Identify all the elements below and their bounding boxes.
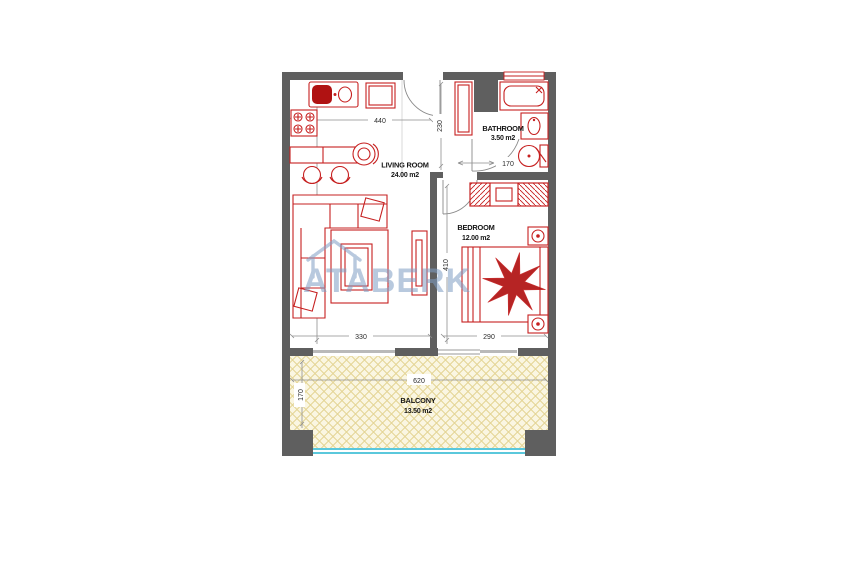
dim-hall-depth: 230 [437, 120, 444, 132]
watermark-text: ATABERK [303, 262, 471, 300]
bedroom-area: 12.00 m2 [462, 235, 490, 242]
living-room-label: LIVING ROOM [381, 161, 429, 170]
toilet [519, 145, 549, 167]
wall-right [548, 72, 556, 432]
bathroom-window [504, 72, 544, 80]
wall-left [282, 72, 290, 432]
dim-balcony-depth: 170 [298, 389, 305, 401]
washbasin [521, 113, 548, 139]
dining-chair-1 [302, 167, 322, 184]
wall-bottom-seg3 [518, 348, 556, 356]
bathtub [500, 82, 548, 110]
dim-bath-door: 170 [502, 161, 514, 168]
dim-bedroom-width: 290 [483, 334, 495, 341]
bathroom-area: 3.50 m2 [491, 135, 516, 142]
wall-bottom-seg1 [282, 348, 313, 356]
living-window-sill [313, 350, 395, 353]
wardrobe [470, 183, 548, 206]
hall-shaft [455, 82, 472, 135]
kitchen-sink-unit [309, 82, 358, 107]
wall-top-mid [443, 72, 504, 80]
balcony-area-label: 13.50 m2 [404, 408, 432, 415]
wall-hall-stub [430, 172, 443, 178]
fridge [366, 83, 395, 108]
dining-table [290, 147, 357, 163]
living-room-area: 24.00 m2 [391, 172, 419, 179]
balcony-label: BALCONY [400, 396, 435, 405]
dim-living-width: 330 [355, 334, 367, 341]
balcony-door [438, 350, 480, 354]
stove [291, 110, 317, 136]
dim-balcony-width: 620 [413, 378, 425, 385]
wall-top-left [282, 72, 403, 80]
wall-bathroom-bedroom [477, 172, 548, 180]
wall-bathroom-block [474, 80, 498, 112]
dim-kitchen-width: 440 [374, 118, 386, 125]
nightstand-bottom [528, 315, 548, 333]
armchair [353, 143, 378, 165]
balcony-area [290, 356, 548, 454]
wall-bottom-seg2 [395, 348, 438, 356]
floor-plan-page: 440 230 650 410 330 290 620 170 170 [0, 0, 850, 566]
floor-plan-svg: 440 230 650 410 330 290 620 170 170 [0, 0, 850, 566]
entrance-door [404, 80, 440, 116]
bed [462, 247, 548, 322]
nightstand-top [528, 227, 548, 245]
wall-balcony-corner-right [525, 430, 556, 456]
dining-chair-2 [330, 167, 350, 184]
bathroom-label: BATHROOM [482, 124, 523, 133]
balcony-railing-glass [313, 448, 525, 450]
bedroom-window-sill [480, 350, 517, 353]
wall-balcony-corner-left [282, 430, 313, 456]
bedroom-label: BEDROOM [457, 223, 494, 232]
